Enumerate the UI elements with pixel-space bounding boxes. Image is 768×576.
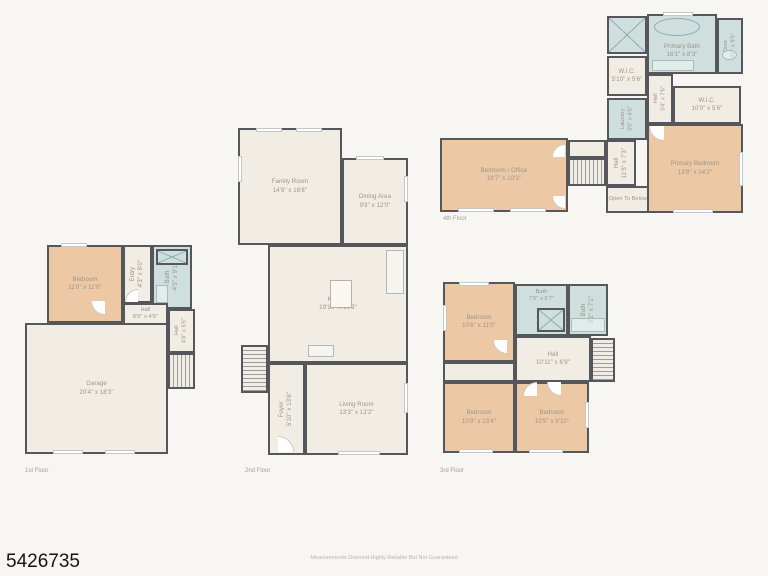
room-label: Primary Bath 16'1" x 8'3" [664,43,700,59]
floor-label-4: 4th Floor [443,216,467,222]
room-label: Family Room 14'6" x 16'8" [272,178,308,194]
window-icon [673,209,713,213]
room-name: Garage [79,380,113,388]
room-family-room: Family Room 14'6" x 16'8" [238,128,342,245]
floor-label-2: 2nd Floor [245,468,270,474]
room-label: Open To Below [609,196,648,203]
room-dining-area: Dining Area 9'8" x 12'0" [342,158,408,245]
window-icon [739,152,743,186]
room-label: Laundry 3'6" x 4'6" [620,106,635,131]
room-name: Dining Area [359,193,391,201]
shower-icon [607,16,647,54]
room-label: Hall 11'5" x 7'3" [613,148,629,178]
room-hall-lower: Hall 11'5" x 7'3" [606,140,636,186]
room-name: Family Room [272,178,308,186]
disclaimer-text: Measurements Deemed Highly Reliable But … [0,555,768,561]
room-label: Bedroom 11'0" x 11'0" [68,276,101,292]
room-dims: 10'0" x 5'6" [692,105,723,113]
counter-icon [386,250,404,294]
room-hall-2: Hall 4'8" x 5'5" [168,309,195,353]
open-to-below: Open To Below [606,186,650,213]
floorplan-4th-floor: Bedroom / Office 19'7" x 10'3" Hall 11'5… [438,12,745,215]
room-dims: 3'4" x 7'6" [660,86,667,111]
room-name: Hall [174,318,181,343]
room-name: Hall [613,148,621,178]
room-name: Hall [653,86,660,111]
room-label: Primary Bedroom 13'8" x 14'2" [671,160,719,176]
counter-icon [308,345,334,357]
window-icon [443,305,447,331]
room-wic-large: W.I.C. 10'0" x 5'6" [673,86,741,124]
room-dims: 7'6" x 5'7" [529,296,554,303]
window-icon [404,383,408,413]
room-label: Garage 20'4" x 18'3" [79,380,113,396]
room-label: Hall 4'8" x 5'5" [174,318,189,343]
room-dims: 20'4" x 18'3" [79,389,113,397]
room-dims: 19'7" x 10'3" [481,175,528,183]
floorplan-canvas: Garage 20'4" x 18'3" Bedroom 11'0" x 11'… [0,0,768,576]
toilet-icon [156,285,168,303]
toilet-icon [722,50,737,60]
closet-strip [443,362,515,382]
room-dims: 10'6" x 11'0" [462,322,496,330]
room-hall-upper: Hall 3'4" x 7'6" [647,74,673,124]
room-dims: 5'10" x 13'6" [287,392,295,426]
room-hall: Hall 8'5" x 4'6" [123,303,168,325]
room-label: Bedroom 10'5" x 9'10" [535,409,569,425]
room-name: Living Room [339,401,373,409]
room-label: Dining Area 9'8" x 12'0" [359,193,391,209]
window-icon [105,450,135,454]
room-name: Bedroom [68,276,101,284]
room-wic-small: W.I.C. 5'10" x 5'6" [607,56,647,96]
window-icon [404,176,408,202]
stairs-icon [168,353,195,389]
window-icon [356,156,384,160]
floor-label-3: 3rd Floor [440,468,464,474]
room-label: Bedroom / Office 19'7" x 10'3" [481,167,528,183]
window-icon [61,243,87,247]
room-label: Hall 8'5" x 4'6" [133,307,158,322]
vanity-icon [652,60,694,71]
window-icon [296,128,322,132]
tub-icon [654,18,700,36]
window-icon [53,450,83,454]
room-label: W.I.C. 10'0" x 5'6" [692,97,723,113]
window-icon [529,449,563,453]
room-dims: 13'3" x 13'2" [339,409,373,417]
room-dims: 5'10" x 5'6" [612,76,643,84]
room-dims: 3'6" x 4'6" [627,106,634,131]
tub-icon [571,318,605,332]
room-bedroom: Bedroom 11'0" x 11'0" [47,245,123,323]
room-dims: 10'11" x 6'9" [536,359,570,367]
window-icon [458,208,494,212]
room-label: Bedroom 10'9" x 13'4" [462,409,496,425]
room-name: Open To Below [609,196,648,203]
stairs-icon [241,345,268,393]
hall-connector [568,140,606,158]
room-label: Bedroom 10'6" x 11'0" [462,314,496,330]
room-label: Hall 3'4" x 7'6" [653,86,668,111]
shower-icon [156,249,188,265]
room-bedroom-office: Bedroom / Office 19'7" x 10'3" [440,138,568,212]
room-name: Bedroom [462,314,496,322]
window-icon [663,12,693,16]
window-icon [256,128,282,132]
room-dims: 16'1" x 8'3" [664,51,700,59]
room-hall: Hall 10'11" x 6'9" [515,336,591,382]
room-dims: 8'5" x 4'6" [133,314,158,321]
floorplan-1st-floor: Garage 20'4" x 18'3" Bedroom 11'0" x 11'… [25,243,197,457]
floorplan-3rd-floor: Bedroom 10'6" x 11'0" Bath 7'6" x 5'7" B… [443,280,615,453]
floorplan-2nd-floor: Family Room 14'6" x 16'8" Dining Area 9'… [238,128,408,455]
kitchen-island-icon [330,280,352,308]
room-name: Bath [529,289,554,296]
window-icon [510,208,546,212]
room-laundry: Laundry 3'6" x 4'6" [607,98,647,140]
room-name: Bedroom [462,409,496,417]
room-dims: 10'5" x 9'10" [535,418,569,426]
room-living-room: Living Room 13'3" x 13'2" [305,363,408,455]
room-name: Primary Bath [664,43,700,51]
room-dims: 11'5" x 7'3" [621,148,629,178]
room-garage: Garage 20'4" x 18'3" [25,323,168,454]
room-dims: 13'8" x 14'2" [671,169,719,177]
room-name: Hall [536,351,570,359]
room-name: Laundry [620,106,627,131]
room-dims: 4'5" x 9'1" [172,263,180,290]
window-icon [459,282,489,286]
room-name: Bedroom [535,409,569,417]
window-icon [459,449,493,453]
room-dims: 14'6" x 16'8" [272,187,308,195]
stairs-icon [568,158,606,186]
room-name: Hall [133,307,158,314]
room-bedroom-left: Bedroom 10'9" x 13'4" [443,382,515,453]
room-label: Entry 4'3" x 8'0" [129,260,145,287]
room-label: Bath 7'6" x 5'7" [529,289,554,304]
room-label: W.I.C. 5'10" x 5'6" [612,68,643,84]
floor-label-1: 1st Floor [25,468,48,474]
room-name: Primary Bedroom [671,160,719,168]
stairs-icon [591,338,615,382]
room-name: W.I.C. [692,97,723,105]
room-name: Bedroom / Office [481,167,528,175]
room-name: W.I.C. [612,68,643,76]
window-icon [238,156,242,182]
shower-icon [537,308,565,332]
room-dims: 4'8" x 5'5" [182,318,189,343]
room-label: Hall 10'11" x 6'9" [536,351,570,367]
room-label: Living Room 13'3" x 13'2" [339,401,373,417]
room-dims: 4'3" x 8'0" [138,260,146,287]
room-dims: 11'0" x 11'0" [68,284,101,292]
room-door: Door 3'5" x 8'5" [717,18,743,74]
room-dims: 10'9" x 13'4" [462,418,496,426]
window-icon [585,402,589,428]
room-label: Foyer 5'10" x 13'6" [278,392,294,426]
window-icon [338,451,380,455]
room-dims: 9'8" x 12'0" [359,202,391,210]
